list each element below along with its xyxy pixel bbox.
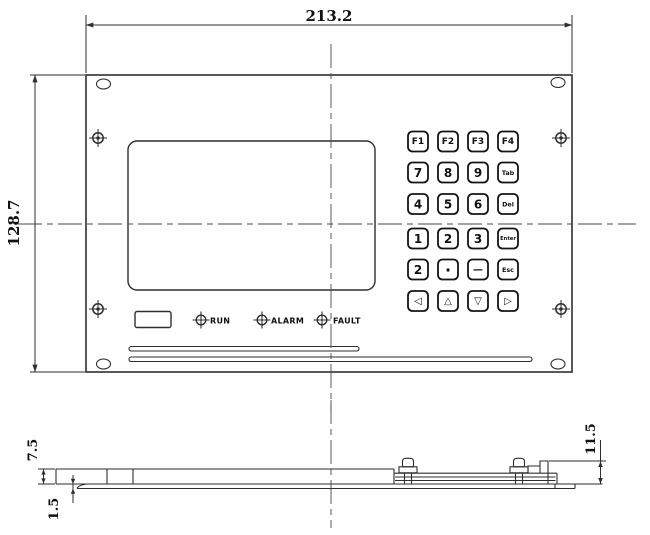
key-label-—: — bbox=[473, 265, 483, 276]
side-bend-ticks bbox=[107, 469, 133, 484]
dimension-overall-height: 128.7 bbox=[5, 75, 85, 372]
key-label-2: 2 bbox=[444, 232, 452, 246]
slot-hole-top-right bbox=[551, 78, 565, 88]
key-label-△: △ bbox=[444, 296, 452, 307]
key-label-4: 4 bbox=[414, 198, 422, 212]
side-screw-nut-2 bbox=[510, 458, 528, 473]
key-label-6: 6 bbox=[474, 198, 482, 212]
key-label-Enter: Enter bbox=[500, 236, 516, 242]
key-label-Esc: Esc bbox=[502, 266, 514, 274]
drawing-page: RUN ALARM FAULT F1F2F3F4789Tab456Del123E… bbox=[0, 0, 650, 535]
key-label-3: 3 bbox=[474, 232, 482, 246]
port-window bbox=[135, 312, 171, 328]
mounting-hole-top-right bbox=[552, 129, 570, 147]
key-label-F4: F4 bbox=[502, 137, 514, 147]
led-fault-icon bbox=[314, 312, 331, 329]
side-view: 7.5 1.5 11.5 bbox=[26, 423, 606, 520]
mounting-hole-bottom-right bbox=[552, 300, 570, 318]
dimension-overall-width: 213.2 bbox=[86, 7, 572, 73]
key-label-Tab: Tab bbox=[502, 169, 515, 177]
side-screw-shafts bbox=[405, 473, 523, 484]
key-label-▽: ▽ bbox=[474, 296, 482, 307]
key-label-1: 1 bbox=[414, 232, 422, 246]
key-label-7: 7 bbox=[414, 166, 422, 180]
side-bottom-plate bbox=[77, 484, 575, 489]
mounting-hole-bottom-left bbox=[89, 300, 107, 318]
dimension-panel-depth: 7.5 bbox=[26, 439, 55, 484]
slot-hole-top-left bbox=[97, 79, 111, 89]
side-pcb-stack bbox=[394, 469, 557, 484]
membrane-slot-upper bbox=[129, 347, 359, 352]
led-fault-label: FAULT bbox=[333, 317, 361, 326]
led-run-label: RUN bbox=[210, 317, 230, 326]
overall-width-value: 213.2 bbox=[306, 7, 353, 25]
dimension-sheet-thickness: 1.5 bbox=[47, 475, 75, 520]
key-label-F2: F2 bbox=[442, 137, 454, 147]
key-label-5: 5 bbox=[444, 198, 452, 212]
rear-height-value: 11.5 bbox=[584, 423, 599, 455]
key-label-F3: F3 bbox=[472, 137, 484, 147]
key-label-8: 8 bbox=[444, 166, 452, 180]
slot-hole-bottom-right bbox=[551, 359, 565, 369]
key-label-◁: ◁ bbox=[414, 296, 422, 307]
slot-hole-bottom-left bbox=[97, 359, 111, 369]
key-label-F1: F1 bbox=[412, 137, 424, 147]
key-label-9: 9 bbox=[474, 166, 482, 180]
led-alarm-icon bbox=[254, 312, 271, 329]
overall-height-value: 128.7 bbox=[5, 200, 23, 247]
membrane-slot-lower bbox=[129, 357, 532, 362]
panel-depth-value: 7.5 bbox=[26, 439, 41, 462]
key-label-▷: ▷ bbox=[504, 296, 512, 307]
key-label-2: 2 bbox=[414, 263, 422, 277]
front-view: RUN ALARM FAULT F1F2F3F4789Tab456Del123E… bbox=[86, 75, 572, 372]
keypad-group: F1F2F3F4789Tab456Del123Enter2·—Esc◁△▽▷ bbox=[408, 132, 518, 312]
key-label-·: · bbox=[445, 261, 451, 280]
led-alarm-label: ALARM bbox=[271, 317, 304, 326]
key-label-Del: Del bbox=[502, 201, 514, 209]
technical-drawing: RUN ALARM FAULT F1F2F3F4789Tab456Del123E… bbox=[0, 0, 650, 535]
led-indicators: RUN ALARM FAULT bbox=[193, 312, 361, 329]
mounting-hole-top-left bbox=[89, 129, 107, 147]
side-screw-nut-1 bbox=[399, 458, 417, 473]
sheet-thickness-value: 1.5 bbox=[47, 498, 62, 521]
display-window bbox=[128, 141, 375, 290]
led-run-icon bbox=[193, 312, 210, 329]
